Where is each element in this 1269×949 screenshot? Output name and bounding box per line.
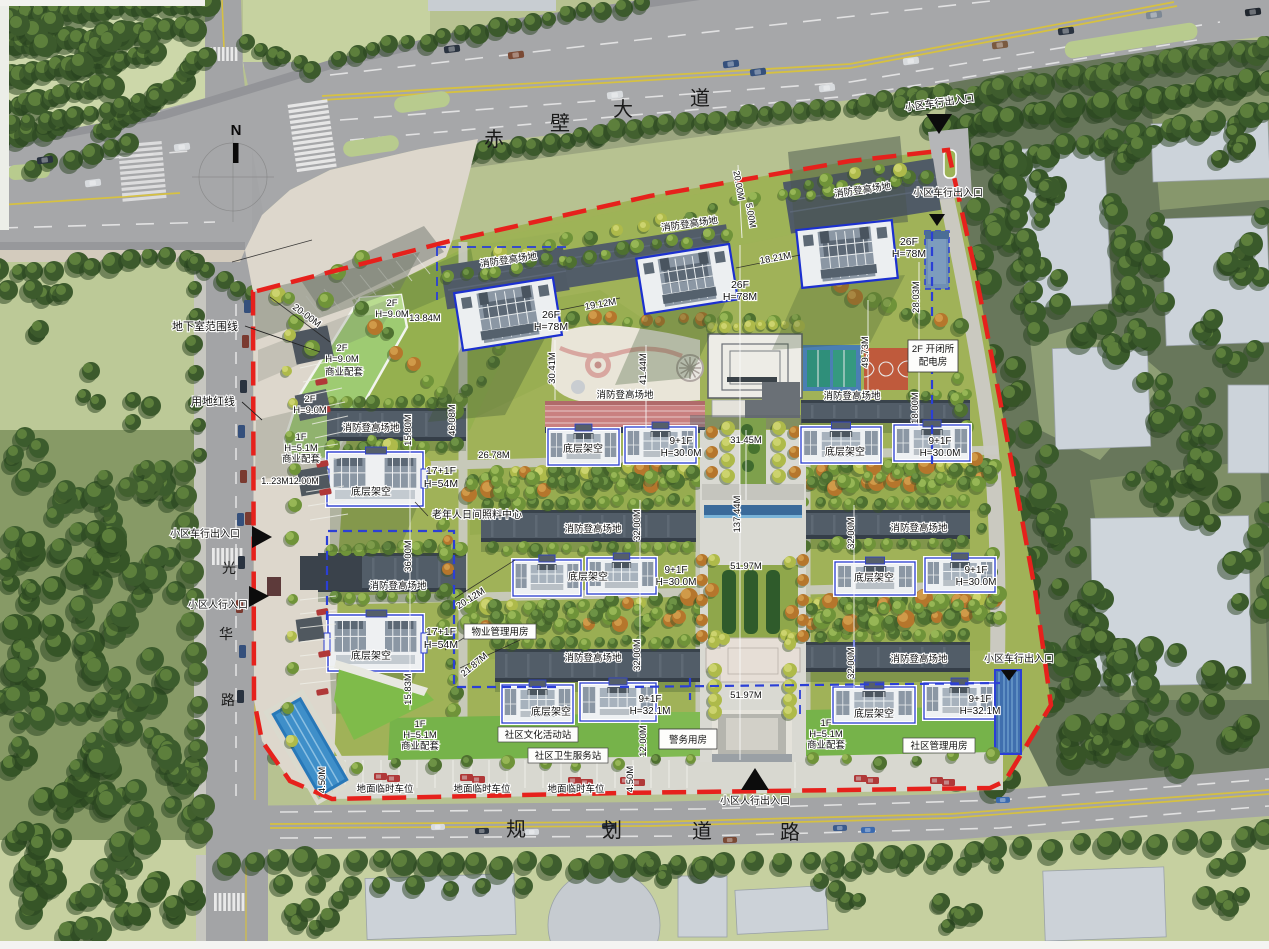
svg-text:H=5.1M: H=5.1M (809, 729, 843, 740)
svg-text:道: 道 (690, 87, 710, 110)
svg-text:消防登高场地: 消防登高场地 (564, 523, 622, 535)
svg-text:底层架空: 底层架空 (825, 445, 865, 458)
svg-text:1F: 1F (414, 719, 425, 730)
svg-text:9+1F: 9+1F (638, 694, 661, 705)
svg-text:商业配套: 商业配套 (325, 366, 364, 378)
svg-text:32.00M: 32.00M (632, 509, 643, 541)
svg-text:1F: 1F (295, 432, 306, 443)
svg-text:137.44M: 137.44M (732, 495, 743, 532)
svg-text:4.50M: 4.50M (625, 766, 636, 792)
svg-text:底层架空: 底层架空 (854, 707, 894, 720)
svg-text:H=32.1M: H=32.1M (960, 706, 1001, 717)
svg-text:规: 规 (506, 818, 526, 841)
svg-text:18.00M: 18.00M (910, 392, 921, 424)
svg-text:小区车行出入口: 小区车行出入口 (170, 527, 240, 540)
svg-text:社区文化活动站: 社区文化活动站 (505, 729, 572, 741)
svg-text:H=78M: H=78M (723, 291, 757, 303)
svg-text:32.00M: 32.00M (632, 639, 643, 671)
svg-text:赤: 赤 (484, 128, 504, 151)
svg-text:消防登高场地: 消防登高场地 (342, 422, 400, 434)
svg-text:路: 路 (221, 692, 235, 708)
svg-text:H=30.0M: H=30.0M (656, 577, 697, 588)
svg-text:底层架空: 底层架空 (563, 442, 603, 455)
svg-text:小区人行入口: 小区人行入口 (188, 598, 248, 611)
svg-text:17+1F: 17+1F (426, 465, 456, 477)
svg-text:消防登高场地: 消防登高场地 (564, 652, 622, 664)
svg-text:2F: 2F (336, 343, 347, 354)
svg-text:49.73M: 49.73M (860, 336, 871, 368)
svg-text:底层架空: 底层架空 (351, 485, 391, 498)
svg-text:光: 光 (222, 560, 236, 576)
svg-text:41.44M: 41.44M (638, 353, 649, 385)
svg-text:社区管理用房: 社区管理用房 (910, 740, 967, 752)
svg-text:31.45M: 31.45M (730, 435, 762, 446)
svg-text:51.97M: 51.97M (730, 561, 762, 572)
svg-text:H=5.1M: H=5.1M (403, 730, 437, 741)
svg-text:道: 道 (692, 820, 712, 843)
svg-text:H=54M: H=54M (424, 639, 458, 651)
svg-text:H=9.0M: H=9.0M (375, 309, 409, 320)
svg-text:30.41M: 30.41M (547, 352, 558, 384)
svg-text:9+1F: 9+1F (964, 565, 987, 576)
svg-text:9+1F: 9+1F (669, 436, 692, 447)
svg-text:消防登高场地: 消防登高场地 (890, 653, 948, 665)
svg-text:老年人日间照料中心: 老年人日间照料中心 (432, 508, 522, 521)
svg-text:划: 划 (602, 819, 622, 842)
svg-text:消防登高场地: 消防登高场地 (596, 389, 654, 401)
svg-text:9+1F: 9+1F (968, 694, 991, 705)
svg-text:H=30.0M: H=30.0M (920, 448, 961, 459)
svg-text:配电房: 配电房 (919, 356, 948, 368)
svg-text:H=78M: H=78M (534, 321, 568, 333)
svg-text:底层架空: 底层架空 (568, 570, 608, 583)
svg-text:底层架空: 底层架空 (531, 705, 571, 718)
svg-text:H=9.0M: H=9.0M (325, 354, 359, 365)
svg-text:12.00M: 12.00M (638, 725, 649, 757)
svg-text:9+1F: 9+1F (928, 436, 951, 447)
svg-text:2F: 2F (386, 298, 397, 309)
svg-text:32.00M: 32.00M (846, 647, 857, 679)
svg-text:用地红线: 用地红线 (191, 394, 235, 408)
svg-text:36.00M: 36.00M (403, 540, 414, 572)
svg-text:壁: 壁 (550, 112, 570, 135)
svg-text:26F: 26F (731, 279, 749, 291)
svg-text:H=30.0M: H=30.0M (661, 448, 702, 459)
svg-text:底层架空: 底层架空 (351, 649, 391, 662)
svg-text:H=5.1M: H=5.1M (284, 443, 318, 454)
svg-text:小区车行出入口: 小区车行出入口 (984, 652, 1054, 665)
svg-text:32.00M: 32.00M (846, 517, 857, 549)
svg-text:26.78M: 26.78M (478, 450, 510, 461)
svg-text:社区卫生服务站: 社区卫生服务站 (535, 750, 602, 762)
svg-text:H=54M: H=54M (424, 478, 458, 490)
svg-text:底层架空: 底层架空 (854, 571, 894, 584)
svg-text:13.84M: 13.84M (409, 313, 441, 324)
svg-text:H=30.0M: H=30.0M (956, 577, 997, 588)
svg-text:9+1F: 9+1F (664, 565, 687, 576)
svg-text:15.80M: 15.80M (403, 414, 414, 446)
svg-text:华: 华 (219, 626, 233, 642)
svg-text:消防登高场地: 消防登高场地 (369, 580, 427, 592)
svg-text:地面临时车位: 地面临时车位 (356, 783, 414, 795)
svg-text:1..23M12.00M: 1..23M12.00M (261, 476, 319, 486)
svg-text:小区车行出入口: 小区车行出入口 (913, 186, 983, 199)
svg-text:地下室范围线: 地下室范围线 (172, 319, 238, 333)
svg-text:商业配套: 商业配套 (282, 453, 321, 465)
svg-text:警务用房: 警务用房 (669, 734, 707, 746)
svg-text:15.83M: 15.83M (403, 673, 414, 705)
svg-text:地面临时车位: 地面临时车位 (547, 783, 605, 795)
svg-text:28.03M: 28.03M (911, 281, 922, 313)
svg-text:路: 路 (780, 821, 800, 844)
svg-text:2F 开闭所: 2F 开闭所 (912, 343, 955, 355)
svg-text:1F: 1F (820, 718, 831, 729)
svg-text:地面临时车位: 地面临时车位 (453, 783, 511, 795)
svg-text:26F: 26F (542, 309, 560, 321)
svg-text:消防登高场地: 消防登高场地 (890, 522, 948, 534)
svg-text:商业配套: 商业配套 (807, 739, 846, 751)
svg-text:4.50M: 4.50M (317, 767, 328, 793)
svg-text:H=9.0M: H=9.0M (293, 405, 327, 416)
svg-text:大: 大 (613, 98, 633, 121)
svg-text:物业管理用房: 物业管理用房 (471, 626, 528, 638)
svg-text:商业配套: 商业配套 (401, 740, 440, 752)
svg-text:N: N (231, 122, 242, 139)
svg-text:26F: 26F (900, 236, 918, 248)
svg-text:2F: 2F (304, 394, 315, 405)
svg-text:46.08M: 46.08M (447, 404, 458, 436)
svg-text:H=32.1M: H=32.1M (630, 706, 671, 717)
svg-text:H=78M: H=78M (892, 248, 926, 260)
svg-text:小区人行出入口: 小区人行出入口 (720, 794, 790, 807)
svg-text:17+1F: 17+1F (426, 626, 456, 638)
svg-text:消防登高场地: 消防登高场地 (823, 390, 881, 402)
svg-text:51.97M: 51.97M (730, 690, 762, 701)
